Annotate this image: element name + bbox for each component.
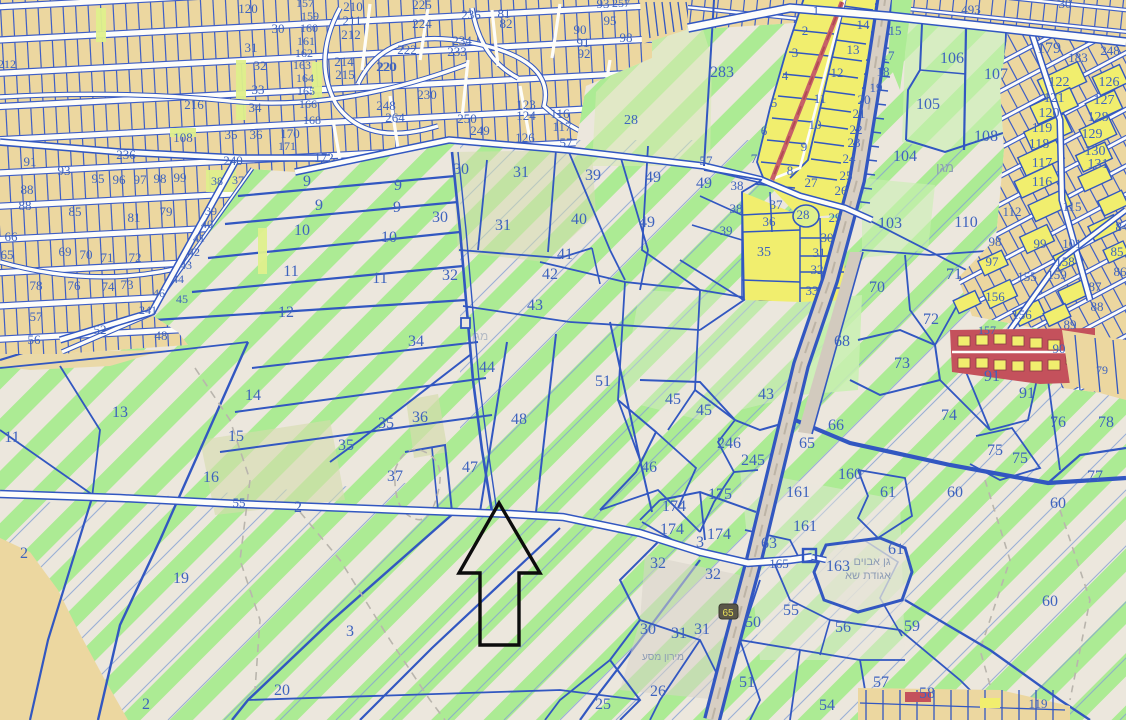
svg-text:2: 2	[142, 696, 150, 713]
svg-text:39: 39	[205, 204, 217, 218]
svg-text:25: 25	[840, 168, 853, 183]
svg-text:33: 33	[806, 283, 819, 298]
svg-text:65: 65	[722, 608, 734, 619]
svg-text:19: 19	[870, 80, 883, 95]
svg-text:26: 26	[650, 683, 666, 700]
svg-text:120: 120	[238, 1, 258, 16]
svg-text:75: 75	[987, 442, 1003, 459]
svg-text:70: 70	[869, 279, 885, 296]
svg-text:19: 19	[173, 570, 189, 587]
svg-text:60: 60	[1042, 593, 1058, 610]
svg-text:104: 104	[893, 148, 917, 165]
svg-text:36: 36	[250, 127, 264, 142]
svg-text:45: 45	[696, 402, 712, 419]
svg-text:72: 72	[923, 311, 939, 328]
svg-text:95: 95	[92, 171, 105, 186]
svg-text:126: 126	[1099, 75, 1120, 90]
svg-text:107: 107	[984, 66, 1008, 83]
svg-text:49: 49	[645, 169, 661, 186]
svg-text:31: 31	[495, 217, 511, 234]
svg-text:73: 73	[894, 355, 910, 372]
svg-text:236: 236	[116, 147, 136, 162]
svg-text:241: 241	[139, 303, 157, 317]
svg-text:54: 54	[819, 697, 835, 714]
svg-text:31: 31	[513, 164, 529, 181]
svg-text:161: 161	[786, 484, 810, 501]
svg-text:220: 220	[377, 59, 397, 74]
svg-text:55: 55	[233, 495, 246, 510]
svg-text:35: 35	[757, 245, 771, 260]
svg-text:21: 21	[853, 106, 866, 121]
svg-text:84: 84	[1116, 219, 1126, 234]
svg-text:25: 25	[595, 696, 611, 713]
svg-text:110: 110	[954, 214, 977, 231]
svg-text:14: 14	[857, 17, 871, 32]
svg-text:34: 34	[408, 333, 424, 350]
svg-text:30: 30	[453, 161, 469, 178]
svg-text:77: 77	[1087, 468, 1103, 485]
svg-text:79: 79	[1096, 363, 1108, 377]
svg-text:103: 103	[878, 215, 902, 232]
svg-text:211: 211	[342, 13, 361, 28]
svg-text:15: 15	[228, 428, 244, 445]
svg-text:222: 222	[397, 42, 417, 57]
svg-text:32: 32	[650, 555, 666, 572]
svg-text:157: 157	[978, 323, 996, 337]
svg-text:57: 57	[30, 309, 44, 324]
svg-text:119: 119	[1028, 696, 1047, 711]
svg-text:30: 30	[432, 209, 448, 226]
svg-text:68: 68	[834, 333, 850, 350]
svg-text:7: 7	[751, 151, 758, 166]
svg-text:98: 98	[620, 30, 633, 45]
svg-text:159: 159	[1047, 267, 1067, 282]
svg-text:38: 38	[731, 178, 744, 193]
svg-text:81: 81	[128, 210, 141, 225]
svg-text:14: 14	[245, 387, 261, 404]
svg-text:160: 160	[838, 466, 862, 483]
svg-text:78: 78	[30, 278, 43, 293]
svg-text:37: 37	[232, 173, 244, 187]
svg-text:37: 37	[770, 197, 784, 212]
svg-text:93: 93	[58, 163, 71, 178]
svg-text:44: 44	[479, 359, 495, 376]
svg-text:174: 174	[660, 521, 684, 538]
svg-text:131: 131	[1088, 157, 1109, 172]
svg-text:127: 127	[1094, 93, 1115, 108]
svg-text:165: 165	[769, 556, 789, 571]
svg-text:117: 117	[1032, 156, 1052, 171]
svg-text:45: 45	[665, 391, 681, 408]
svg-text:174: 174	[707, 526, 731, 543]
svg-text:18: 18	[877, 64, 890, 79]
svg-text:108: 108	[974, 128, 998, 145]
svg-text:44: 44	[172, 272, 184, 286]
svg-text:112: 112	[1002, 204, 1021, 219]
svg-text:97: 97	[134, 172, 148, 187]
svg-text:175: 175	[708, 486, 732, 503]
svg-text:6: 6	[761, 123, 768, 138]
svg-text:1: 1	[813, 3, 820, 18]
svg-text:72: 72	[129, 250, 142, 265]
svg-text:97: 97	[986, 254, 1000, 269]
svg-text:174: 174	[662, 498, 686, 515]
svg-text:52: 52	[94, 322, 107, 337]
svg-text:20: 20	[858, 92, 871, 107]
svg-text:40: 40	[571, 211, 587, 228]
svg-text:86: 86	[1114, 264, 1126, 279]
svg-text:65: 65	[799, 435, 815, 452]
svg-text:74: 74	[941, 407, 957, 424]
svg-text:11: 11	[283, 263, 298, 280]
svg-text:166: 166	[299, 97, 317, 111]
svg-text:55: 55	[783, 602, 799, 619]
svg-text:48: 48	[155, 328, 168, 343]
svg-text:122: 122	[1049, 75, 1070, 90]
svg-text:95: 95	[604, 13, 617, 28]
svg-text:12: 12	[831, 65, 844, 80]
svg-text:35: 35	[225, 127, 238, 142]
svg-text:108: 108	[173, 130, 193, 145]
svg-text:161: 161	[793, 518, 817, 535]
svg-text:115: 115	[1062, 199, 1081, 214]
svg-text:11: 11	[814, 91, 827, 106]
svg-text:119: 119	[1032, 121, 1052, 136]
svg-text:216: 216	[184, 97, 204, 112]
svg-text:12: 12	[278, 304, 294, 321]
svg-text:28: 28	[797, 207, 810, 222]
svg-text:88: 88	[21, 182, 34, 197]
svg-text:230: 230	[417, 87, 437, 102]
svg-text:16: 16	[203, 469, 219, 486]
svg-text:264: 264	[385, 110, 405, 125]
svg-text:236: 236	[461, 7, 481, 22]
svg-text:65: 65	[1, 247, 14, 262]
svg-text:172: 172	[314, 150, 334, 165]
svg-text:8: 8	[787, 163, 794, 178]
svg-text:32: 32	[254, 58, 267, 73]
svg-text:23: 23	[848, 135, 861, 150]
svg-text:13: 13	[847, 42, 860, 57]
svg-text:70: 70	[80, 247, 93, 262]
svg-text:3: 3	[346, 623, 354, 640]
svg-text:26: 26	[835, 183, 849, 198]
svg-text:32: 32	[705, 566, 721, 583]
svg-text:168: 168	[303, 113, 321, 127]
svg-text:41: 41	[557, 246, 573, 263]
svg-text:40: 40	[201, 217, 213, 231]
svg-text:49: 49	[696, 175, 712, 192]
svg-text:13: 13	[112, 404, 128, 421]
svg-text:76: 76	[68, 278, 82, 293]
svg-text:493: 493	[961, 2, 981, 17]
svg-text:98: 98	[989, 234, 1002, 249]
svg-text:30: 30	[1059, 0, 1072, 11]
svg-text:106: 106	[940, 50, 964, 67]
svg-text:76: 76	[1050, 414, 1066, 431]
svg-text:גן אבוים: גן אבוים	[853, 556, 890, 568]
svg-text:212: 212	[0, 57, 16, 71]
svg-text:אגודת שא: אגודת שא	[845, 570, 891, 582]
svg-text:225: 225	[412, 0, 432, 12]
svg-text:43: 43	[180, 258, 192, 272]
svg-text:29: 29	[829, 210, 842, 225]
svg-text:10: 10	[809, 117, 822, 132]
svg-text:33: 33	[252, 82, 265, 97]
svg-text:63: 63	[761, 535, 777, 552]
svg-text:43: 43	[758, 386, 774, 403]
svg-text:27: 27	[805, 175, 819, 190]
svg-text:42: 42	[542, 266, 558, 283]
svg-text:31: 31	[245, 40, 258, 55]
svg-text:35: 35	[378, 415, 394, 432]
svg-text:210: 210	[343, 0, 363, 14]
svg-text:4: 4	[782, 68, 789, 83]
svg-text:249: 249	[470, 123, 490, 138]
svg-text:57: 57	[560, 135, 574, 150]
svg-text:98: 98	[154, 171, 167, 186]
svg-text:246: 246	[717, 435, 741, 452]
svg-text:69: 69	[59, 244, 72, 259]
svg-text:מגן: מגן	[936, 160, 954, 175]
svg-text:47: 47	[462, 459, 478, 476]
svg-text:46: 46	[153, 286, 165, 300]
svg-text:15: 15	[889, 23, 902, 38]
svg-text:92: 92	[578, 46, 591, 61]
svg-text:91: 91	[984, 368, 1000, 385]
svg-text:2: 2	[20, 545, 28, 562]
svg-text:45: 45	[176, 292, 188, 306]
svg-text:38: 38	[730, 201, 743, 216]
svg-text:257: 257	[612, 0, 630, 10]
svg-text:10: 10	[381, 229, 397, 246]
svg-text:9: 9	[303, 173, 311, 190]
svg-text:73: 73	[121, 277, 134, 292]
svg-text:2: 2	[294, 499, 302, 516]
svg-text:30: 30	[272, 21, 285, 36]
svg-text:מגן: מגן	[472, 329, 488, 343]
svg-text:66: 66	[828, 417, 844, 434]
svg-text:99: 99	[174, 170, 187, 185]
svg-text:163: 163	[293, 58, 311, 72]
svg-text:9: 9	[315, 197, 323, 214]
svg-text:11: 11	[372, 270, 387, 287]
svg-text:59: 59	[904, 618, 920, 635]
svg-text:156: 156	[985, 289, 1005, 304]
svg-text:91: 91	[1019, 385, 1035, 402]
svg-text:30: 30	[821, 230, 834, 245]
svg-text:79: 79	[160, 204, 173, 219]
svg-text:60: 60	[1050, 495, 1066, 512]
svg-text:36: 36	[412, 409, 428, 426]
svg-text:56: 56	[835, 619, 851, 636]
svg-text:96: 96	[113, 172, 127, 187]
svg-text:43: 43	[527, 297, 543, 314]
svg-text:49: 49	[639, 214, 655, 231]
svg-text:66: 66	[5, 229, 19, 244]
svg-text:57: 57	[700, 153, 714, 168]
svg-text:17: 17	[882, 48, 896, 63]
svg-text:215: 215	[335, 67, 355, 82]
svg-text:57: 57	[873, 674, 889, 691]
svg-text:37: 37	[387, 468, 403, 485]
svg-text:78: 78	[1098, 414, 1114, 431]
svg-text:128: 128	[1088, 110, 1109, 125]
svg-text:117: 117	[552, 119, 572, 134]
svg-text:24: 24	[843, 151, 857, 166]
svg-text:9: 9	[394, 177, 402, 194]
svg-text:31: 31	[694, 621, 710, 638]
svg-text:30: 30	[640, 621, 656, 638]
svg-text:34: 34	[249, 100, 263, 115]
svg-text:121: 121	[1044, 91, 1065, 106]
svg-text:124: 124	[516, 108, 536, 123]
svg-text:58: 58	[919, 685, 935, 702]
svg-text:171: 171	[278, 139, 296, 153]
svg-text:156: 156	[1012, 307, 1032, 322]
svg-text:99: 99	[1034, 236, 1047, 251]
svg-text:93: 93	[597, 0, 610, 11]
svg-text:32: 32	[811, 262, 824, 277]
svg-text:116: 116	[1032, 175, 1052, 190]
svg-text:60: 60	[947, 484, 963, 501]
svg-text:31: 31	[813, 245, 826, 260]
svg-text:2: 2	[802, 23, 809, 38]
svg-text:224: 224	[412, 16, 432, 31]
svg-text:87: 87	[1089, 279, 1103, 294]
svg-text:32: 32	[442, 267, 458, 284]
svg-text:88: 88	[1091, 299, 1104, 314]
svg-text:36: 36	[763, 214, 777, 229]
svg-text:42: 42	[188, 245, 200, 259]
svg-text:85: 85	[69, 204, 82, 219]
svg-text:160: 160	[300, 21, 318, 35]
svg-text:212: 212	[341, 27, 361, 42]
svg-text:39: 39	[585, 167, 601, 184]
svg-text:85: 85	[1111, 244, 1124, 259]
svg-text:165: 165	[297, 84, 315, 98]
svg-text:74: 74	[102, 279, 116, 294]
svg-text:9: 9	[393, 199, 401, 216]
svg-text:91: 91	[24, 154, 37, 169]
svg-text:28: 28	[624, 113, 638, 128]
svg-text:90: 90	[1053, 341, 1066, 356]
svg-text:3: 3	[696, 534, 704, 551]
svg-text:71: 71	[101, 250, 114, 265]
svg-text:71: 71	[946, 266, 962, 283]
svg-text:88: 88	[19, 198, 32, 213]
svg-text:179: 179	[1037, 40, 1061, 57]
svg-text:3: 3	[792, 45, 799, 60]
svg-text:75: 75	[1012, 450, 1028, 467]
svg-text:129: 129	[1082, 127, 1103, 142]
svg-text:118: 118	[1029, 137, 1049, 152]
svg-text:38: 38	[211, 174, 223, 188]
svg-text:82: 82	[500, 16, 513, 31]
svg-text:89: 89	[1064, 317, 1077, 332]
svg-text:164: 164	[296, 71, 314, 85]
svg-text:51: 51	[595, 373, 611, 390]
svg-text:233: 233	[447, 44, 467, 59]
svg-text:20: 20	[274, 682, 290, 699]
svg-text:240: 240	[223, 153, 243, 168]
svg-text:11: 11	[4, 429, 19, 446]
svg-text:41: 41	[193, 231, 205, 245]
svg-text:155: 155	[1017, 269, 1037, 284]
svg-text:248: 248	[1100, 43, 1120, 58]
svg-text:283: 283	[710, 64, 734, 81]
svg-text:56: 56	[28, 332, 42, 347]
svg-text:מירון מסע: מירון מסע	[642, 652, 684, 663]
svg-text:105: 105	[916, 96, 940, 113]
svg-text:101: 101	[1062, 236, 1082, 251]
svg-text:10: 10	[294, 222, 310, 239]
svg-text:5: 5	[771, 95, 778, 110]
svg-text:50: 50	[745, 614, 761, 631]
svg-text:46: 46	[641, 459, 657, 476]
svg-text:31: 31	[671, 625, 687, 642]
svg-text:126: 126	[515, 130, 535, 145]
svg-text:35: 35	[338, 437, 354, 454]
svg-text:120: 120	[1039, 106, 1060, 121]
svg-text:39: 39	[720, 223, 733, 238]
svg-text:51: 51	[739, 674, 755, 691]
svg-text:9: 9	[801, 139, 808, 154]
svg-text:61: 61	[880, 484, 896, 501]
svg-text:48: 48	[511, 411, 527, 428]
svg-text:183: 183	[1068, 50, 1088, 65]
svg-text:245: 245	[741, 452, 765, 469]
